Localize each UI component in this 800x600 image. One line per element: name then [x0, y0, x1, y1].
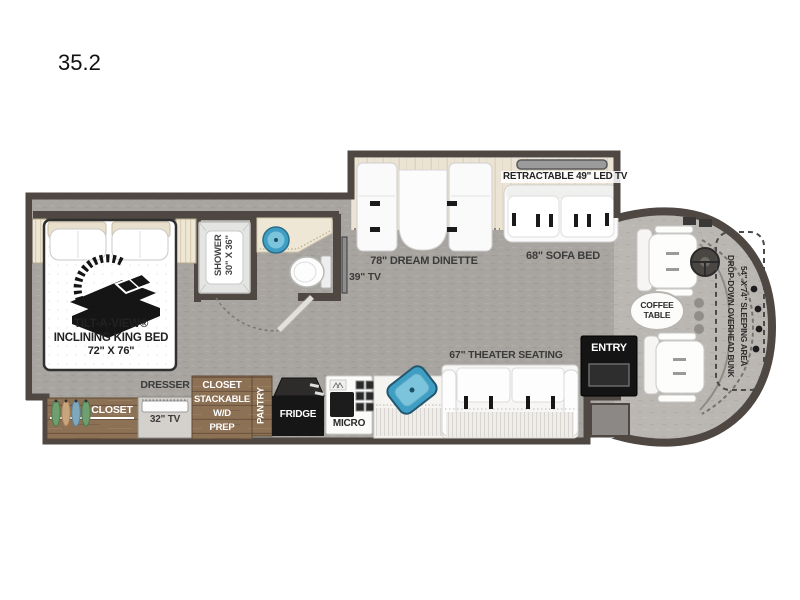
dresser-label: DRESSER — [136, 379, 194, 391]
theater-seating-label: 67" THEATER SEATING — [436, 349, 576, 361]
tv-32 — [142, 401, 188, 412]
floorplan-model-number: 35.2 — [58, 50, 101, 76]
shower-label: SHOWER 30" X 36" — [213, 223, 235, 287]
driver-seat — [637, 226, 697, 296]
tv-39-label: 39" TV — [349, 271, 381, 283]
entry-label: ENTRY — [581, 342, 637, 355]
retractable-tv-label: RETRACTABLE 49" LED TV — [501, 171, 623, 183]
refrigerator — [272, 378, 324, 436]
king-bed-label: TILT-A-VIEW® INCLINING KING BED 72" X 76… — [40, 318, 182, 358]
dinette-bench — [357, 163, 397, 251]
pantry-label: PANTRY — [255, 378, 266, 434]
retractable-tv — [517, 160, 607, 169]
cab-top-vent — [699, 219, 712, 227]
coffee-table-label: COFFEE TABLE — [631, 300, 683, 320]
dinette-bench — [449, 163, 492, 251]
stackable-wd-label: CLOSET STACKABLE W/D PREP — [192, 379, 252, 435]
passenger-seat — [644, 333, 704, 402]
drop-down-bunk-label: DROP-DOWN OVERHEAD BUNK 54" X 74" SLEEPI… — [724, 236, 758, 396]
console-cupholders — [694, 298, 704, 334]
floorplan-page: 35.2 TILT-A-VIEW® INCLINING KING BED 72"… — [0, 0, 800, 600]
dream-dinette — [357, 163, 492, 251]
bathroom-sink-icon — [263, 227, 289, 253]
toilet-icon — [290, 256, 331, 288]
micro-label: MICRO — [324, 418, 374, 430]
theater-seating — [442, 365, 578, 438]
tv-39 — [342, 237, 347, 293]
closet-label: CLOSET — [88, 404, 136, 416]
steering-wheel-icon — [691, 248, 719, 276]
nightstand — [176, 219, 196, 263]
dinette-label: 78" DREAM DINETTE — [354, 255, 494, 268]
tv-32-label: 32" TV — [139, 414, 191, 426]
cab-top-vent — [683, 217, 696, 225]
fridge-label: FRIDGE — [273, 409, 323, 421]
dinette-table — [399, 170, 447, 250]
sofa-bed-label: 68" SOFA BED — [513, 250, 613, 263]
